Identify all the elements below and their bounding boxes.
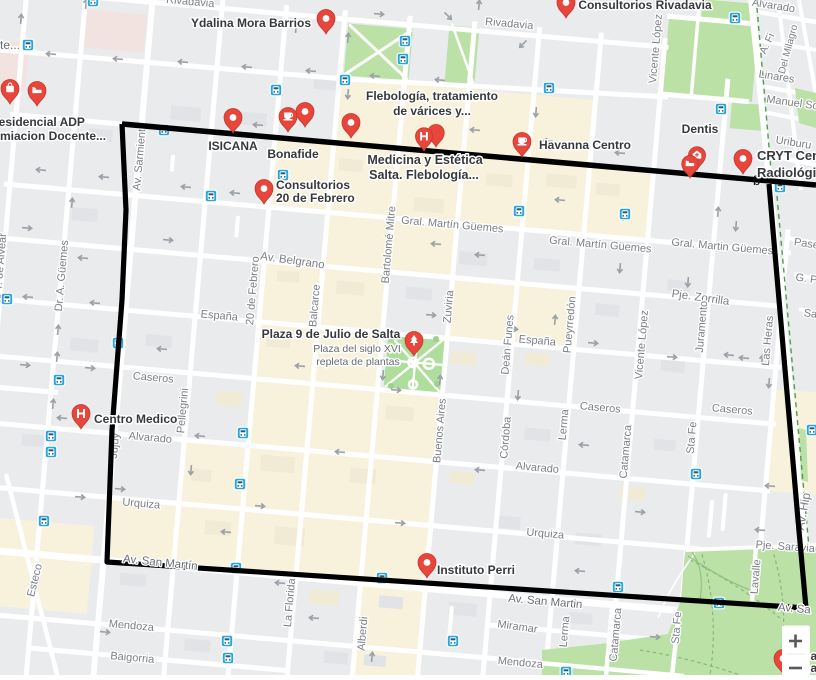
svg-text:miacion Docente...: miacion Docente...	[0, 129, 106, 143]
svg-text:Consultorios: Consultorios	[276, 178, 350, 192]
svg-text:Centro Medico: Centro Medico	[94, 412, 177, 426]
svg-text:Salta. Flebología...: Salta. Flebología...	[369, 168, 479, 182]
svg-text:ISICANA: ISICANA	[208, 139, 258, 153]
svg-text:Radiológic: Radiológic	[757, 165, 816, 180]
svg-text:20 de Febrero: 20 de Febrero	[276, 191, 355, 205]
svg-text:repleta de plantas: repleta de plantas	[316, 356, 399, 368]
svg-text:Consultorios Rivadavia: Consultorios Rivadavia	[578, 0, 712, 12]
svg-text:Havanna Centro: Havanna Centro	[539, 138, 631, 152]
svg-text:Instituto Perri: Instituto Perri	[437, 563, 515, 577]
svg-text:al: al	[811, 661, 816, 675]
svg-text:Residencial ADP: Residencial ADP	[0, 115, 85, 129]
svg-text:Plaza 9 de Julio de Salta: Plaza 9 de Julio de Salta	[262, 327, 401, 341]
svg-text:Ydalina Mora Barrios: Ydalina Mora Barrios	[191, 16, 311, 30]
svg-text:CRYT Cent: CRYT Cent	[757, 148, 816, 163]
svg-text:Medicina y Estética: Medicina y Estética	[367, 153, 483, 167]
svg-text:Plaza del siglo XVI: Plaza del siglo XVI	[313, 343, 401, 355]
svg-text:de várices y...: de várices y...	[393, 104, 471, 118]
svg-text:Bonafide: Bonafide	[267, 147, 319, 161]
svg-text:te...: te...	[0, 38, 20, 52]
svg-text:Flebología, tratamiento: Flebología, tratamiento	[366, 89, 498, 103]
svg-text:Sa: Sa	[803, 307, 816, 321]
svg-text:Dentis: Dentis	[682, 122, 719, 136]
